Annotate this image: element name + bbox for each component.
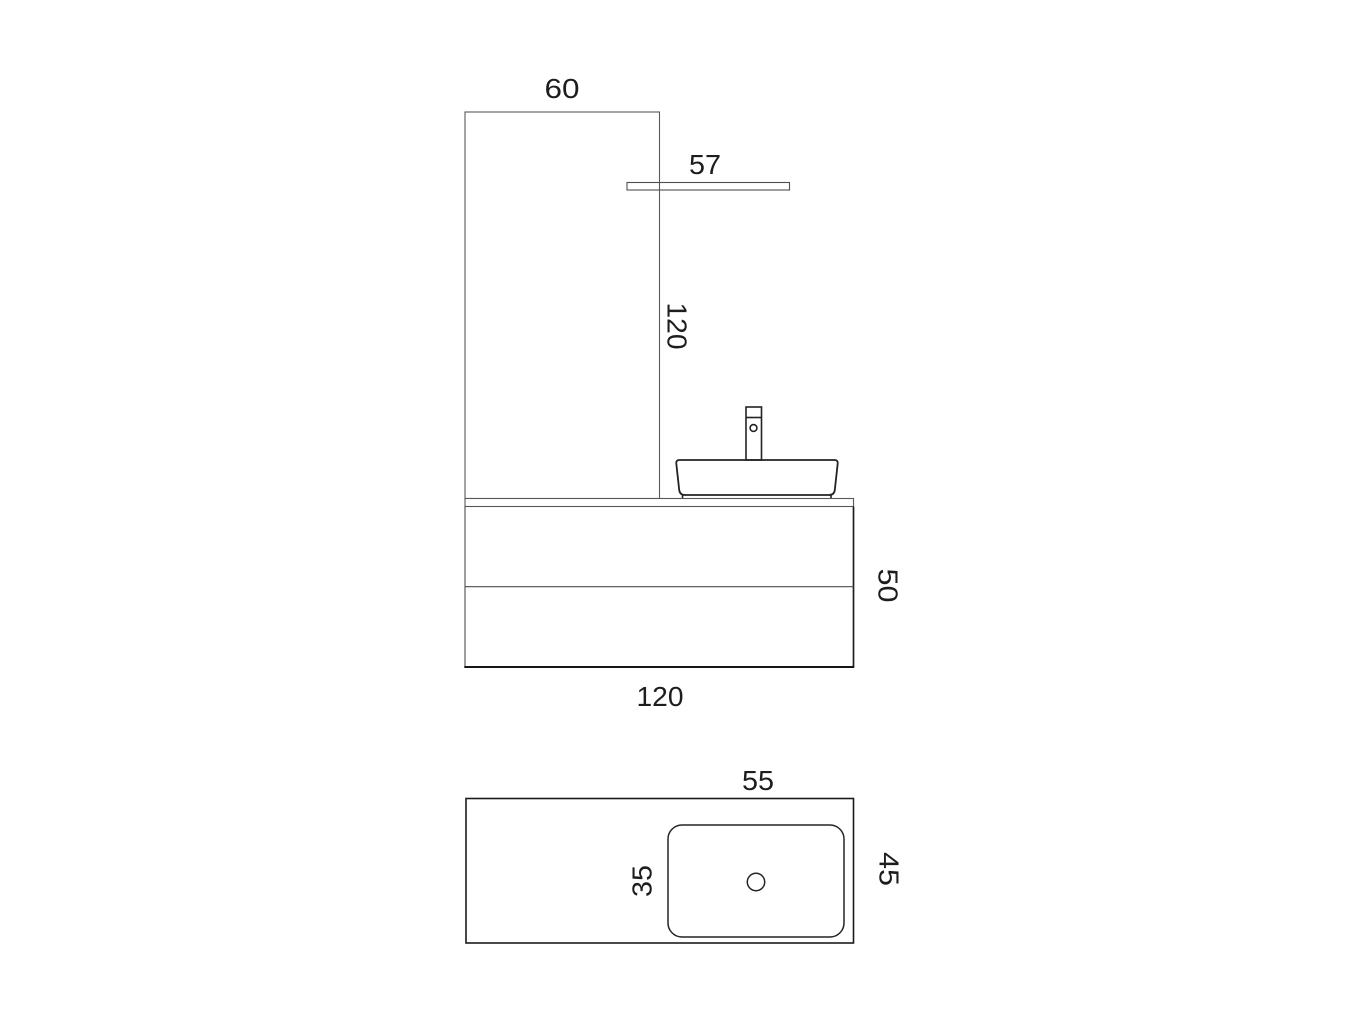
- svg-text:60: 60: [545, 73, 580, 104]
- svg-text:120: 120: [662, 303, 693, 350]
- svg-text:57: 57: [689, 149, 721, 180]
- svg-text:120: 120: [637, 681, 684, 712]
- svg-text:55: 55: [742, 765, 774, 796]
- svg-text:50: 50: [873, 569, 904, 603]
- svg-text:45: 45: [874, 852, 905, 886]
- svg-text:35: 35: [627, 865, 658, 897]
